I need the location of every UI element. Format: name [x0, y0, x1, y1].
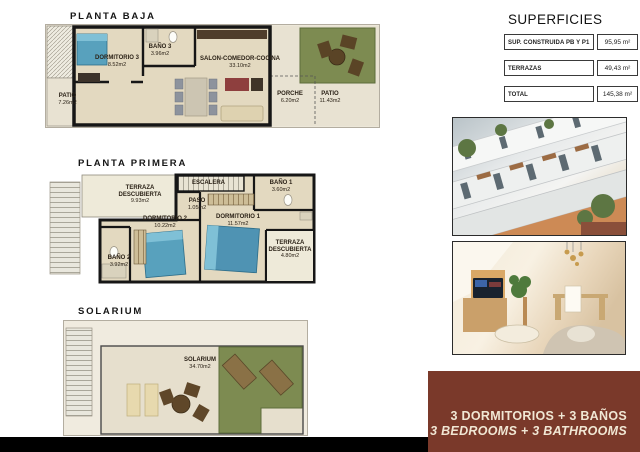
planta-baja-drawing	[45, 24, 390, 128]
superficies-row-label: TOTAL	[504, 86, 594, 102]
superficies-row-label: SUP. CONSTRUIDA PB Y P1	[504, 34, 594, 50]
toilet-bano-2	[110, 247, 118, 258]
dining-table	[175, 78, 217, 116]
solarium-drawing	[63, 320, 308, 436]
bed-dormitorio-1	[205, 225, 260, 273]
bed-dormitorio-3	[77, 34, 107, 65]
toilet	[169, 32, 177, 43]
exterior-stairs	[66, 328, 92, 416]
solarium-title: SOLARIUM	[78, 306, 143, 317]
solarium-plan: SOLARIUM 34.70m2	[63, 320, 308, 436]
brochure-page: PLANTA BAJA	[0, 0, 640, 452]
superficies-row-label: TERRAZAS	[504, 60, 594, 76]
superficies-row-value: 49,43 m²	[597, 60, 638, 76]
escalera-stairs	[178, 176, 244, 191]
planta-primera-plan: TERRAZA DESCUBIERTA 9.93m2 ESCALERA BAÑO…	[48, 172, 316, 285]
planta-primera-drawing	[48, 172, 316, 285]
planta-baja-plan: DORMITORIO 3 8.52m2 BAÑO 3 3.96m2 SALON-…	[45, 24, 390, 128]
interior-render-image	[452, 241, 626, 355]
superficies-row-value: 95,95 m²	[597, 34, 638, 50]
feature-banner: 3 DORMITORIOS + 3 BAÑOS 3 BEDROOMS + 3 B…	[428, 371, 640, 452]
kitchen-counter	[197, 30, 267, 39]
toilet-bano-1	[284, 195, 292, 206]
planta-primera-title: PLANTA PRIMERA	[78, 158, 187, 169]
banner-line-en: 3 BEDROOMS + 3 BATHROOMS	[430, 424, 627, 439]
superficies-row-value: 145,38 m²	[597, 86, 638, 102]
terraza-floor	[267, 231, 313, 281]
desk	[78, 73, 100, 82]
superficies-title: SUPERFICIES	[508, 12, 602, 27]
footer-bar	[0, 437, 428, 452]
bed-dormitorio-2	[142, 230, 186, 277]
banner-line-es: 3 DORMITORIOS + 3 BAÑOS	[451, 409, 628, 424]
planta-baja-title: PLANTA BAJA	[70, 11, 156, 22]
exterior-stairs	[50, 182, 80, 274]
exterior-render-image	[452, 117, 627, 236]
wardrobe	[208, 194, 254, 205]
